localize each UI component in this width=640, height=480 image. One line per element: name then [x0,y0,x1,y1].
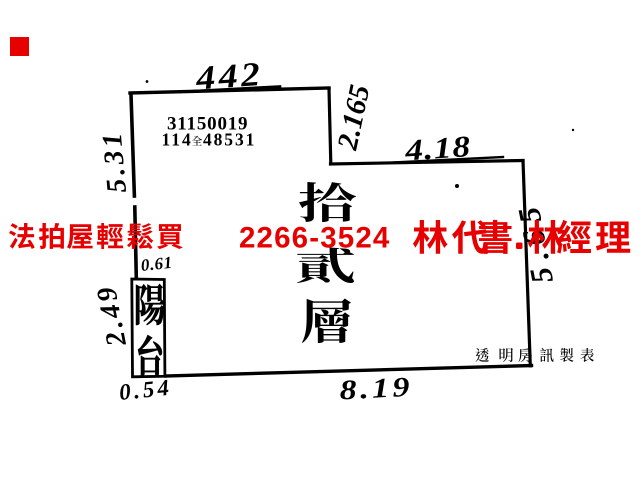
svg-text:0.61: 0.61 [140,253,174,275]
svg-text:4.18: 4.18 [403,130,472,167]
svg-text:2266-3524: 2266-3524 [239,222,390,255]
svg-text:5.31: 5.31 [97,128,133,194]
svg-text:48531: 48531 [203,130,256,150]
svg-text:8.19: 8.19 [339,371,414,406]
svg-text:114: 114 [162,130,193,150]
svg-text:442: 442 [194,55,265,97]
